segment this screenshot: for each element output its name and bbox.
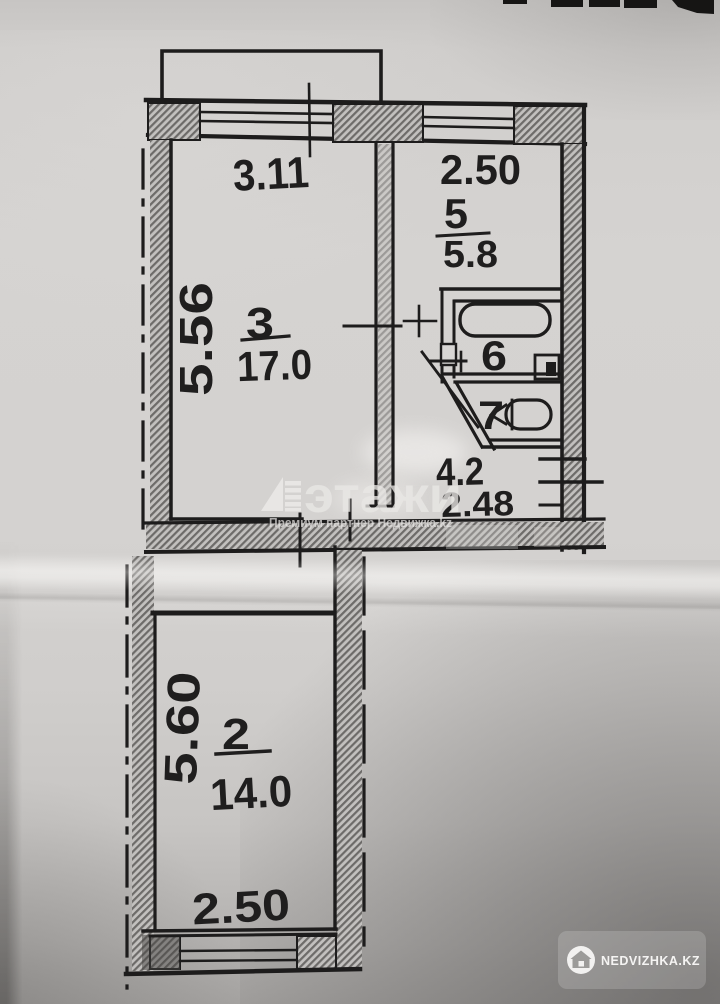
svg-text:7: 7 xyxy=(478,394,504,438)
svg-text:2.50: 2.50 xyxy=(440,146,521,193)
svg-text:5.60: 5.60 xyxy=(154,671,210,786)
svg-text:17.0: 17.0 xyxy=(236,341,313,391)
svg-text:NEDVIZHKA.KZ: NEDVIZHKA.KZ xyxy=(601,954,700,968)
svg-text:2.50: 2.50 xyxy=(191,880,291,934)
svg-text:Премиум партнер Недвижка.kz: Премиум партнер Недвижка.kz xyxy=(269,515,452,530)
svg-text:5: 5 xyxy=(444,190,468,237)
svg-text:6: 6 xyxy=(481,332,507,379)
svg-text:14.0: 14.0 xyxy=(209,767,293,820)
svg-text:3.11: 3.11 xyxy=(232,148,310,201)
svg-text:5.56: 5.56 xyxy=(170,282,222,396)
svg-text:5.8: 5.8 xyxy=(443,234,498,276)
